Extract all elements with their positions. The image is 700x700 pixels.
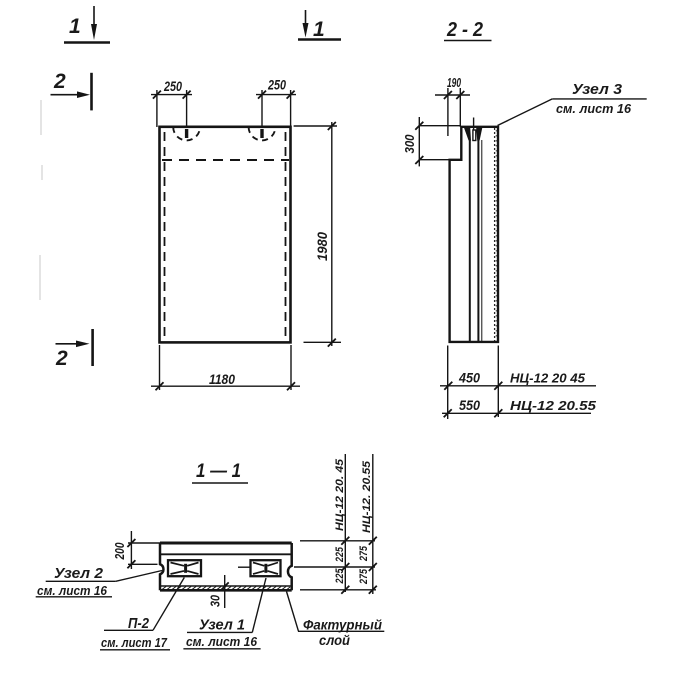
svg-text:2: 2 [55,347,68,370]
svg-text:250: 250 [163,79,182,94]
svg-text:см. лист 16: см. лист 16 [186,635,258,649]
svg-text:1: 1 [313,18,325,41]
svg-text:225: 225 [334,568,346,585]
svg-text:НЦ-12 20. 45: НЦ-12 20. 45 [334,458,346,531]
svg-text:450: 450 [458,371,480,386]
svg-text:225: 225 [334,546,346,563]
svg-text:250: 250 [267,78,286,93]
svg-text:НЦ-12. 20.55: НЦ-12. 20.55 [361,460,373,533]
svg-text:30: 30 [208,594,223,607]
svg-text:2 - 2: 2 - 2 [446,19,483,41]
svg-text:275: 275 [358,545,370,562]
svg-text:см. лист 16: см. лист 16 [556,101,632,116]
svg-text:1: 1 [69,15,81,38]
svg-text:1180: 1180 [209,371,235,387]
svg-text:550: 550 [459,398,480,413]
svg-text:Фактурный: Фактурный [303,617,382,633]
svg-text:1 — 1: 1 — 1 [196,461,241,482]
svg-text:НЦ-12 20 45: НЦ-12 20 45 [510,371,586,386]
svg-text:1980: 1980 [314,232,330,261]
svg-text:2: 2 [53,70,66,93]
svg-text:300: 300 [402,134,417,154]
svg-text:см. лист 17: см. лист 17 [101,636,168,650]
svg-text:200: 200 [112,542,127,560]
svg-text:см. лист 16: см. лист 16 [37,584,108,598]
svg-text:слой: слой [319,632,350,648]
svg-text:Узел 2: Узел 2 [54,566,103,582]
svg-text:НЦ-12 20.55: НЦ-12 20.55 [510,398,597,413]
svg-text:Узел 3: Узел 3 [572,82,622,98]
svg-text:190: 190 [447,76,461,90]
svg-text:275: 275 [358,568,370,585]
svg-text:Узел 1: Узел 1 [199,618,245,634]
